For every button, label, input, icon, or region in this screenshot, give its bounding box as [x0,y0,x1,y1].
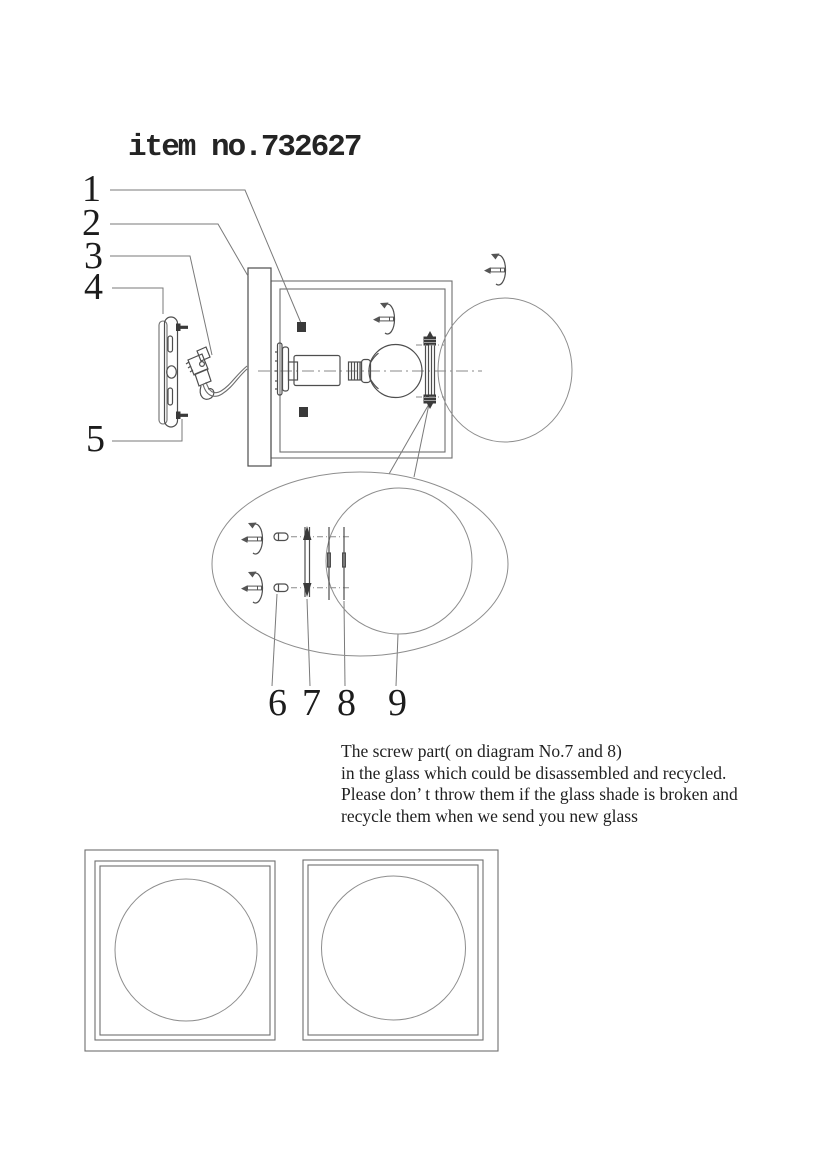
leader-line-5 [112,419,182,441]
part-label-6: 6 [268,684,287,722]
globe-front-left [115,879,257,1021]
part-label-7: 7 [302,684,321,722]
detail-pins-part8 [328,527,346,600]
leader-line-3 [110,256,212,355]
wall-plate [248,268,271,466]
item-number-title: item no.732627 [128,130,360,165]
mounting-screw-bottom [176,412,188,420]
recycle-note-line: recycle them when we send you new glass [341,806,738,828]
mounting-screw-top [176,324,188,332]
detail-screw-part6 [274,533,288,592]
part-label-9: 9 [388,684,407,722]
leader-line-8 [344,601,345,686]
leader-line-9 [396,634,398,686]
leader-lines [110,190,429,686]
recycle-note-line: in the glass which could be disassembled… [341,763,738,785]
mounting-bracket [159,317,188,427]
leader-line-7 [307,599,310,686]
part-label-5: 5 [86,420,105,458]
leader-line-4 [112,288,163,314]
recycle-note: The screw part( on diagram No.7 and 8) i… [341,741,738,827]
fixing-screw-head [297,322,306,332]
part-label-4: 4 [84,268,103,306]
detail-link-line [414,404,429,477]
detail-glass-globe [326,488,472,634]
glass-ring [416,331,444,409]
assembly-diagram [0,0,826,1167]
detail-ring-part7 [303,526,312,597]
leader-line-2 [110,224,248,276]
turn-screw-icon [484,254,506,286]
part-label-8: 8 [337,684,356,722]
detail-ellipse-view [212,472,508,656]
fixing-screw-head [299,407,308,417]
turn-screw-icon [373,303,395,335]
turn-screw-icon [241,572,263,604]
detail-link-line [389,404,429,474]
recycle-note-line: Please don’ t throw them if the glass sh… [341,784,738,806]
turn-screw-icon [241,523,263,555]
recycle-note-line: The screw part( on diagram No.7 and 8) [341,741,738,763]
glass-globe [438,298,572,442]
instruction-sheet: item no.732627 1 2 3 4 5 6 7 8 9 The scr… [0,0,826,1167]
lamp-socket-assembly [258,303,482,418]
wire-connector [186,347,214,399]
globe-front-right [322,876,466,1020]
fixture-front-view [85,850,498,1051]
